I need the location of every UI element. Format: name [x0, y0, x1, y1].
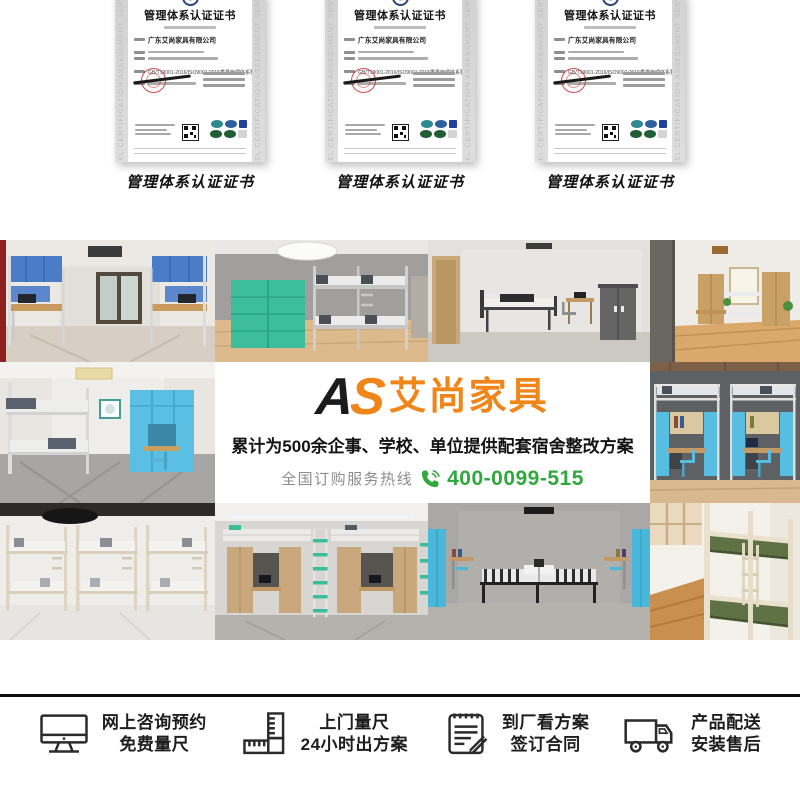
service-steps: 网上咨询预约 免费量尺	[0, 704, 800, 764]
brand-name: 艾尚家具	[389, 378, 549, 416]
certification-emblem-icon	[182, 0, 199, 6]
photo-blue-bunk-dorm	[0, 240, 215, 362]
qr-code-icon	[602, 124, 619, 141]
hotline-row: 全国订购服务热线 400-0099-515	[281, 467, 584, 491]
certificate-caption: 管理体系认证证书	[535, 171, 685, 192]
service-online-consult: 网上咨询预约 免费量尺	[39, 712, 207, 757]
certificate-side-stripe: ANGEL CERTIFICATION ASSESSMENT SERVICES	[672, 0, 685, 162]
certificate-side-stripe: ANGEL CERTIFICATION ASSESSMENT SERVICES	[115, 0, 128, 162]
section-divider	[0, 694, 800, 697]
certificate-side-stripe: ANGEL CERTIFICATION ASSESSMENT SERVICES	[462, 0, 475, 162]
certificate-image: ANGEL CERTIFICATION ASSESSMENT SERVICES …	[535, 0, 685, 162]
certificate-side-stripe: ANGEL CERTIFICATION ASSESSMENT SERVICES	[325, 0, 338, 162]
certificate-caption: 管理体系认证证书	[115, 171, 265, 192]
brand-banner: AS 艾尚家具 累计为500余企事、学校、单位提供配套宿舍整改方案 全国订购服务…	[215, 362, 650, 503]
photo-white-bunks-blue-wardrobe	[0, 362, 215, 503]
photo-loft-wardrobe-desks	[215, 503, 428, 640]
service-line2: 24小时出方案	[301, 734, 408, 756]
brand-logo: AS 艾尚家具	[316, 374, 548, 421]
certificate-3: ANGEL CERTIFICATION ASSESSMENT SERVICES …	[535, 0, 685, 192]
truck-icon	[624, 713, 678, 755]
ruler-icon	[242, 711, 288, 757]
photo-wood-floor-dorm	[650, 240, 800, 362]
certification-emblem-icon	[392, 0, 409, 6]
service-line2: 安装售后	[691, 734, 761, 756]
certificate-title: 管理体系认证证书	[134, 7, 246, 23]
photo-loft-workstations	[650, 362, 800, 503]
banner-headline: 累计为500余企事、学校、单位提供配套宿舍整改方案	[231, 432, 633, 457]
service-delivery-install: 产品配送 安装售后	[624, 712, 761, 757]
certificate-image: ANGEL CERTIFICATION ASSESSMENT SERVICES …	[115, 0, 265, 162]
accreditation-logos	[409, 120, 457, 138]
phone-icon	[420, 469, 440, 489]
contract-icon	[443, 711, 489, 757]
certificate-company: 广东艾尚家具有限公司	[148, 34, 216, 44]
photo-gray-room-striped-beds	[428, 503, 650, 640]
hotline-label: 全国订购服务热线	[281, 468, 413, 489]
service-line1: 网上咨询预约	[102, 712, 207, 734]
promo-page: ANGEL CERTIFICATION ASSESSMENT SERVICES …	[0, 0, 800, 800]
certificate-caption: 管理体系认证证书	[325, 171, 475, 192]
accreditation-logos	[619, 120, 667, 138]
service-line2: 免费量尺	[102, 734, 207, 756]
monitor-icon	[39, 712, 89, 756]
certificate-title: 管理体系认证证书	[344, 7, 456, 23]
certificate-company: 广东艾尚家具有限公司	[568, 34, 636, 44]
certificate-image: ANGEL CERTIFICATION ASSESSMENT SERVICES …	[325, 0, 475, 162]
certificate-company: 广东艾尚家具有限公司	[358, 34, 426, 44]
certificate-title: 管理体系认证证书	[554, 7, 666, 23]
dorm-photo-collage: AS 艾尚家具 累计为500余企事、学校、单位提供配套宿舍整改方案 全国订购服务…	[0, 240, 800, 640]
hotline-number: 400-0099-515	[447, 467, 584, 491]
service-line2: 签订合同	[502, 734, 590, 756]
certificate-side-stripe: ANGEL CERTIFICATION ASSESSMENT SERVICES	[252, 0, 265, 162]
certificate-side-stripe: ANGEL CERTIFICATION ASSESSMENT SERVICES	[535, 0, 548, 162]
service-line1: 产品配送	[691, 712, 761, 734]
certification-emblem-icon	[602, 0, 619, 6]
photo-cream-bunk-beds	[0, 503, 215, 640]
qr-code-icon	[182, 124, 199, 141]
photo-green-metal-bunk-closeup	[650, 503, 800, 640]
photo-green-lockers-bunks	[215, 240, 428, 362]
qr-code-icon	[392, 124, 409, 141]
certificate-1: ANGEL CERTIFICATION ASSESSMENT SERVICES …	[115, 0, 265, 192]
accreditation-logos	[199, 120, 247, 138]
logo-as-monogram: AS	[315, 374, 385, 421]
service-onsite-measure: 上门量尺 24小时出方案	[242, 711, 408, 757]
photo-single-bed-room	[428, 240, 650, 362]
service-sign-contract: 到厂看方案 签订合同	[443, 711, 590, 757]
service-line1: 到厂看方案	[502, 712, 590, 734]
certificates-section: ANGEL CERTIFICATION ASSESSMENT SERVICES …	[0, 0, 800, 192]
certificate-2: ANGEL CERTIFICATION ASSESSMENT SERVICES …	[325, 0, 475, 192]
service-line1: 上门量尺	[301, 712, 408, 734]
